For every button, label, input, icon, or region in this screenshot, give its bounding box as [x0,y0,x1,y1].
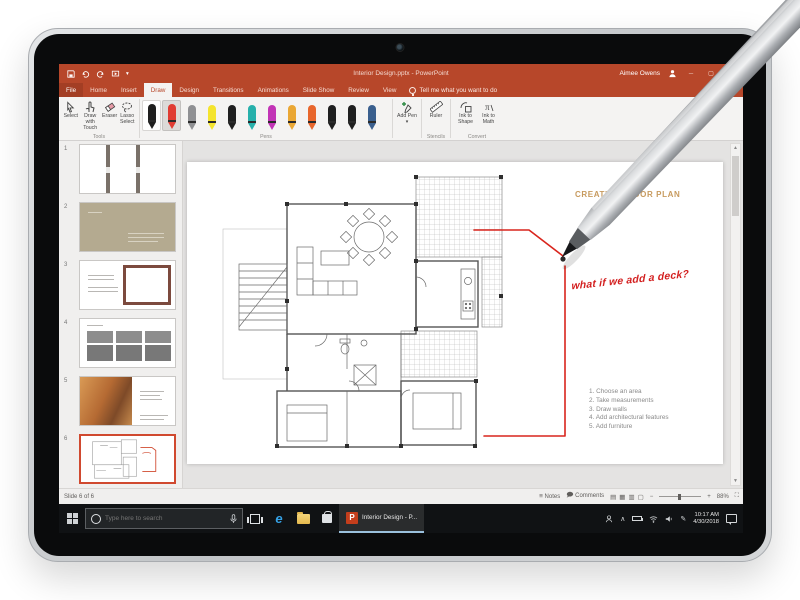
lightbulb-icon [409,87,416,94]
microphone-icon[interactable] [230,514,237,524]
titlebar-right: Aimee Owens ─ ▢ ✕ [620,69,743,78]
tab-animations[interactable]: Animations [251,83,296,97]
front-camera-icon [396,43,405,52]
group-label-pens: Pens [140,134,392,140]
user-name[interactable]: Aimee Owens [620,70,660,77]
stage: ▾ Interior Design.pptx - PowerPoint Aime… [0,0,800,600]
maximize-button[interactable]: ▢ [705,70,717,77]
notes-toggle[interactable]: ≡ Notes [539,493,560,500]
cursor-icon [65,101,76,113]
slide-5-photo [80,377,132,426]
tray-expand-icon[interactable]: ∧ [620,515,625,523]
volume-icon[interactable] [665,515,673,523]
tab-draw[interactable]: Draw [144,83,173,97]
slide-3-photo-frame [123,265,171,305]
taskbar-search[interactable] [85,508,243,529]
view-buttons: ▤ ▦ ▥ ▢ [610,493,644,501]
pen-black-4[interactable] [342,100,361,131]
slide-number: 1 [64,146,67,152]
slide-6-thumbnail-selected[interactable] [79,434,176,484]
slide-indicator: Slide 6 of 6 [59,494,94,500]
eraser-button[interactable]: Eraser [101,99,119,120]
undo-icon[interactable] [81,70,90,78]
slide-sorter-button[interactable]: ▦ [619,493,625,501]
pen-black-1[interactable] [142,100,161,131]
ruler-icon [430,101,443,113]
tab-review[interactable]: Review [341,83,376,97]
pen-teal[interactable] [242,100,261,131]
slide-number: 4 [64,320,67,326]
ink-to-shape-button[interactable]: Ink to Shape [454,99,477,126]
qat-customize-icon[interactable]: ▾ [126,71,129,77]
cortana-icon [91,514,101,524]
scrollbar-thumb[interactable] [732,156,739,216]
powerpoint-task-button[interactable]: P Interior Design - P... [339,504,424,533]
group-pens: Pens [140,97,392,140]
slide-5-thumbnail[interactable] [79,376,176,426]
group-stencils: Ruler Stencils [422,97,450,140]
ruler-button[interactable]: Ruler [425,99,447,120]
reading-view-button[interactable]: ▥ [628,493,634,501]
touch-hand-icon [84,101,96,113]
store-bag-icon [322,514,332,523]
status-bar: Slide 6 of 6 ≡ Notes 🗩 Comments ▤ ▦ ▥ ▢ … [59,488,743,504]
workspace: 1 2 [59,141,743,488]
pen-settings-icon[interactable]: ✎ [680,515,686,523]
tell-me-label: Tell me what you want to do [419,87,497,94]
zoom-slider-knob[interactable] [678,494,681,500]
tab-view[interactable]: View [376,83,404,97]
step-item: 5. Add furniture [589,423,669,432]
tell-me-box[interactable]: Tell me what you want to do [403,83,503,97]
group-add-pen: Add Pen ▾ [393,97,421,140]
ink-to-math-button[interactable]: π Ink to Math [477,99,500,126]
close-button[interactable]: ✕ [725,70,737,77]
slide-1-photo [80,145,175,193]
pen-gold[interactable] [282,100,301,131]
tab-slide-show[interactable]: Slide Show [296,83,342,97]
edge-icon: e [275,511,282,526]
action-center-icon[interactable] [726,514,737,523]
windows-logo-icon [67,513,78,524]
folder-icon [297,514,310,524]
ink-to-math-icon: π [483,101,495,113]
statusbar-right: ≡ Notes 🗩 Comments ▤ ▦ ▥ ▢ − + 88% ⛶ [539,491,743,502]
dropdown-arrow-icon: ▾ [406,119,409,125]
task-view-button[interactable] [243,504,267,533]
step-item: 4. Add architectural features [589,414,669,423]
highlighter-yellow[interactable] [202,100,221,131]
slide-1-thumbnail[interactable] [79,144,176,194]
scroll-up-icon[interactable]: ▲ [731,145,740,151]
add-pen-button[interactable]: Add Pen ▾ [396,99,418,126]
group-tools: Select Draw with Touch Eraser Lasso [59,97,139,140]
slide-2-content [80,203,175,251]
svg-text:π: π [485,102,490,112]
powerpoint-task-label: Interior Design - P... [362,514,417,521]
eraser-icon [104,101,116,113]
store-button[interactable] [315,504,339,533]
battery-icon[interactable] [632,516,642,521]
system-tray: ∧ ✎ 10:17 AM 4/30/2018 [605,512,743,526]
select-button[interactable]: Select [62,99,80,120]
tab-file[interactable]: File [59,83,83,97]
tab-transitions[interactable]: Transitions [206,83,251,97]
comments-toggle[interactable]: 🗩 Comments [566,491,604,502]
pen-black-2[interactable] [222,100,241,131]
file-explorer-button[interactable] [291,504,315,533]
zoom-out-button[interactable]: − [650,494,654,500]
zoom-in-button[interactable]: + [707,494,711,500]
fit-slide-button[interactable]: ⛶ [735,493,739,500]
normal-view-button[interactable]: ▤ [610,493,616,501]
step-item: 2. Take measurements [589,397,669,406]
steps-list: 1. Choose an area 2. Take measurements 3… [589,388,669,432]
draw-with-touch-button[interactable]: Draw with Touch [80,99,101,132]
slide-canvas[interactable]: CREATE A FLOOR PLAN [187,162,723,464]
titlebar: ▾ Interior Design.pptx - PowerPoint Aime… [59,64,743,83]
ribbon-draw: Select Draw with Touch Eraser Lasso [59,97,743,141]
vertical-scrollbar[interactable]: ▲ ▼ [730,143,741,486]
tab-insert[interactable]: Insert [114,83,144,97]
tab-design[interactable]: Design [172,83,206,97]
slide-4-thumbnail[interactable] [79,318,176,368]
slide-number: 5 [64,378,67,384]
pen-gray[interactable] [182,100,201,131]
minimize-button[interactable]: ─ [685,71,697,77]
pen-tip-contact-point [560,256,565,261]
taskbar-clock[interactable]: 10:17 AM 4/30/2018 [693,512,719,526]
pen-orange[interactable] [302,100,321,131]
task-view-icon [250,514,260,524]
group-label-stencils: Stencils [422,134,450,140]
add-pen-icon [401,101,413,113]
ink-to-shape-icon [460,101,472,113]
scroll-down-icon[interactable]: ▼ [731,478,740,484]
notes-icon: ≡ [539,493,543,500]
start-button[interactable] [59,504,85,533]
zoom-slider[interactable] [659,496,701,497]
lasso-icon [121,101,133,113]
search-input[interactable] [105,515,226,522]
save-icon[interactable] [67,70,75,78]
slide-thumbnail-panel: 1 2 [59,141,183,488]
slide-6-mini-floorplan [81,436,174,484]
tablet-bezel: ▾ Interior Design.pptx - PowerPoint Aime… [34,34,766,556]
group-convert: Ink to Shape π Ink to Math Convert [451,97,503,140]
share-icon[interactable] [668,69,677,78]
ribbon-tab-bar: File Home Insert Draw Design Transitions… [59,83,743,97]
powerpoint-icon: P [346,512,358,524]
quick-access-toolbar: ▾ [59,70,129,78]
slide-3-thumbnail[interactable] [79,260,176,310]
zoom-level[interactable]: 88% [717,494,729,500]
edge-button[interactable]: e [267,504,291,533]
people-icon[interactable] [605,515,613,523]
slide-number: 2 [64,204,67,210]
start-slideshow-icon[interactable] [111,70,120,78]
pen-red-selected[interactable] [162,100,181,131]
clock-date: 4/30/2018 [693,519,719,526]
screen: ▾ Interior Design.pptx - PowerPoint Aime… [59,64,743,533]
step-item: 1. Choose an area [589,388,669,397]
group-label-tools: Tools [59,134,139,140]
pen-galaxy[interactable] [362,100,381,131]
slide-2-thumbnail[interactable] [79,202,176,252]
pen-black-3[interactable] [322,100,341,131]
surface-tablet: ▾ Interior Design.pptx - PowerPoint Aime… [28,28,772,562]
wifi-icon[interactable] [649,515,658,523]
tab-home[interactable]: Home [83,83,114,97]
slide-number: 6 [64,436,67,442]
lasso-select-button[interactable]: Lasso Select [118,99,136,126]
comments-icon: 🗩 [566,492,573,499]
group-label-convert: Convert [451,134,503,140]
windows-taskbar: e P Interior Design - P... ∧ ✎ [59,504,743,533]
redo-icon[interactable] [96,70,105,78]
slide-number: 3 [64,262,67,268]
step-item: 3. Draw walls [589,406,669,415]
slideshow-view-button[interactable]: ▢ [638,493,644,501]
pen-magenta[interactable] [262,100,281,131]
clock-time: 10:17 AM [693,512,719,519]
